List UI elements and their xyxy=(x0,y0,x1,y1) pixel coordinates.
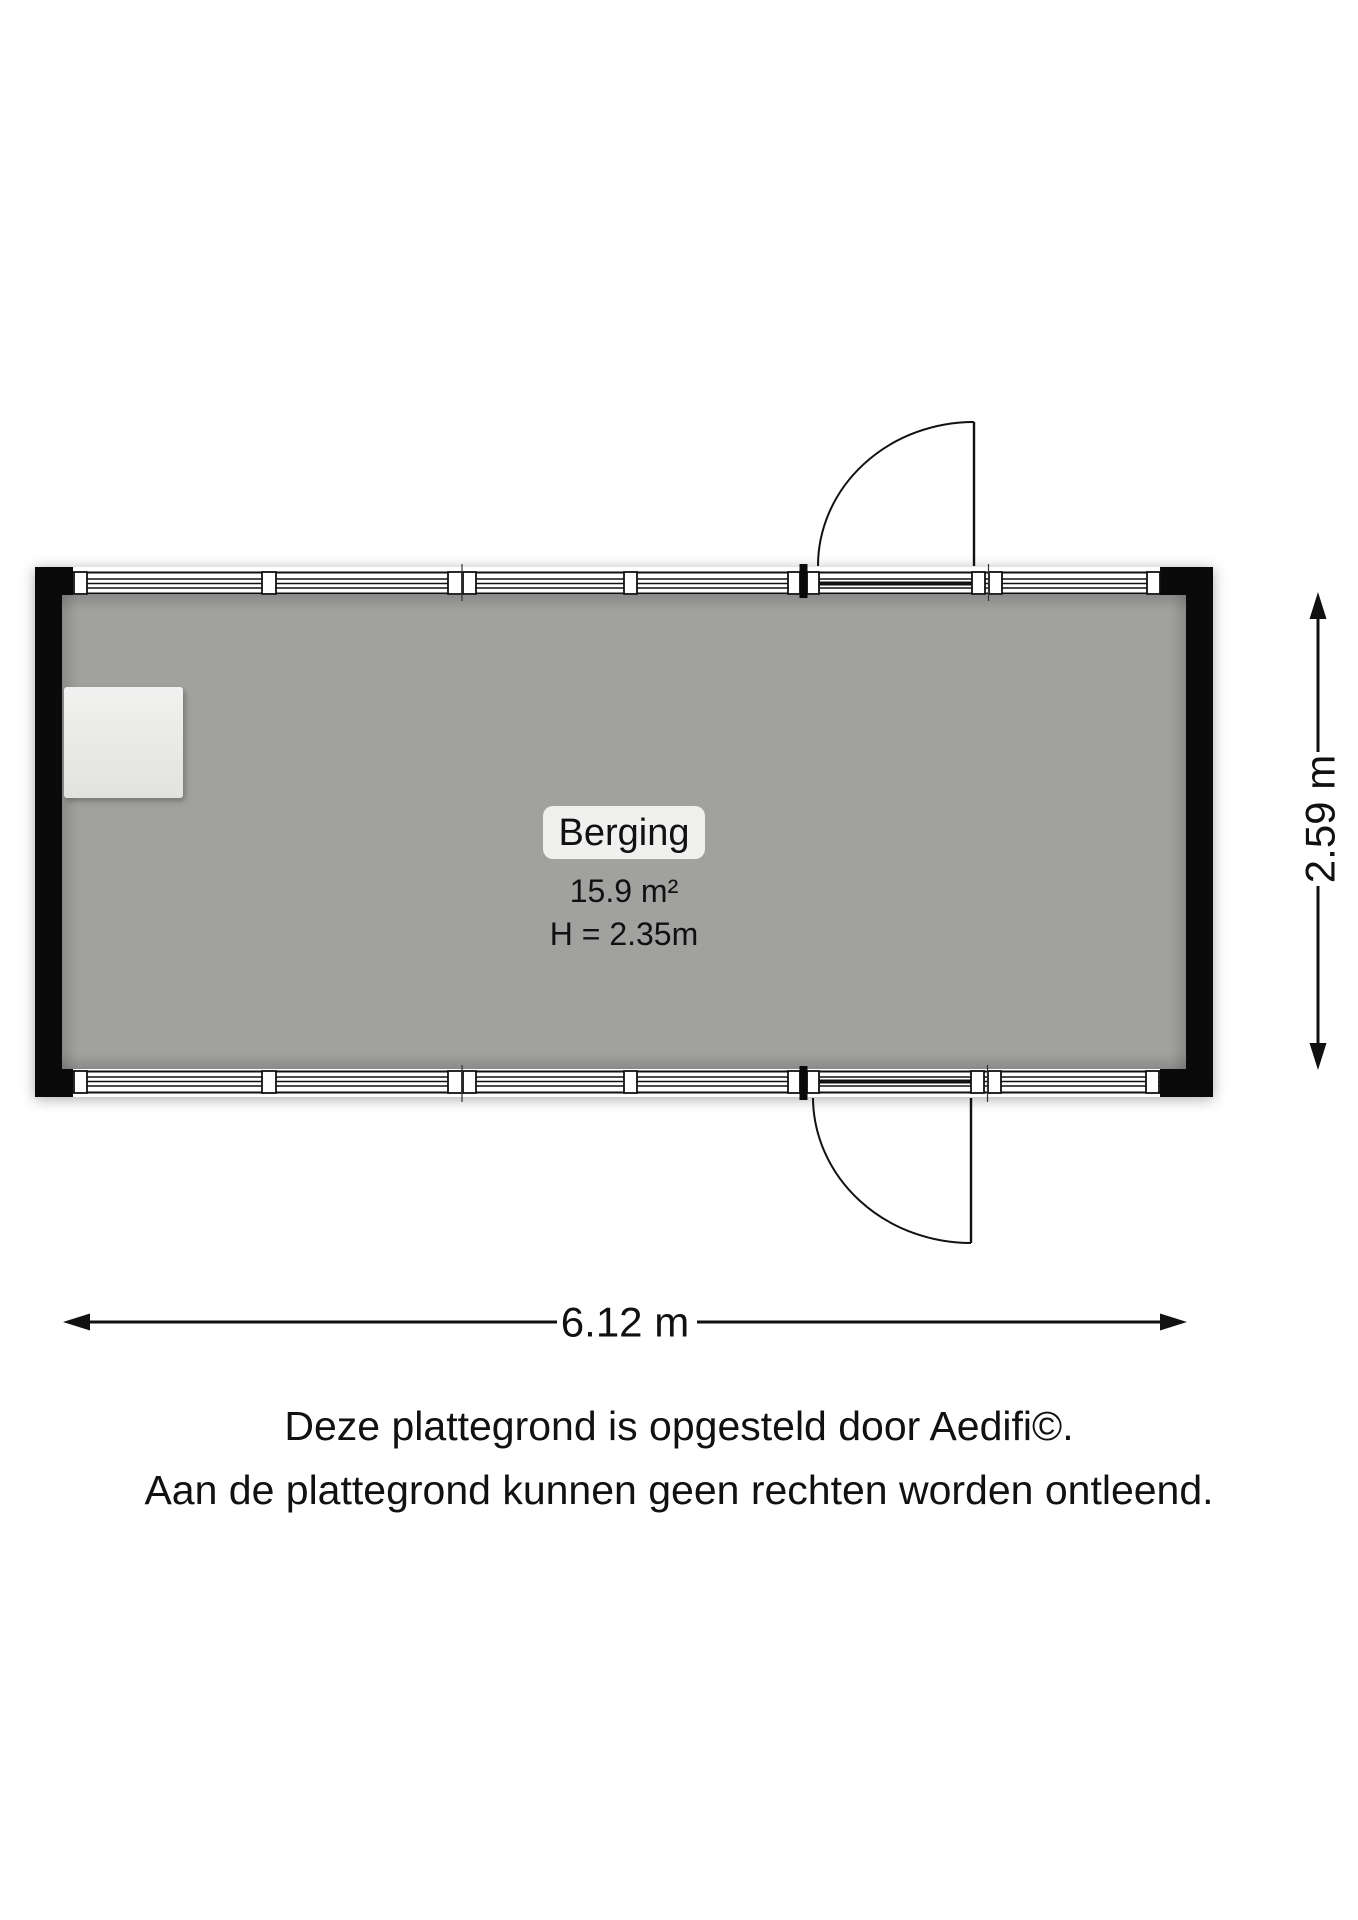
room-name: Berging xyxy=(559,812,690,854)
corner-bottom-right xyxy=(1160,1069,1213,1097)
fixture-block xyxy=(64,687,183,798)
corner-bottom-left xyxy=(35,1069,73,1097)
door-bottom xyxy=(813,1098,971,1243)
room-area: 15.9 m² xyxy=(570,873,679,909)
door-swing-arc-top xyxy=(818,422,974,566)
wall-left xyxy=(35,567,62,1097)
arrow-right-icon xyxy=(1160,1314,1187,1331)
door-top xyxy=(818,422,974,566)
corner-top-right xyxy=(1160,567,1213,595)
floor-plan-page: Berging 15.9 m² H = 2.35m 6.12 m 2.59 m … xyxy=(0,0,1358,1920)
footer-line-1: Deze plattegrond is opgesteld door Aedif… xyxy=(284,1403,1073,1449)
window-band-bottom xyxy=(73,1065,1160,1102)
corner-top-left xyxy=(35,567,73,595)
footer-line-2: Aan de plattegrond kunnen geen rechten w… xyxy=(144,1467,1213,1513)
room-ceiling-height: H = 2.35m xyxy=(550,916,699,952)
arrow-up-icon xyxy=(1310,592,1327,619)
dimension-width-label: 6.12 m xyxy=(561,1299,689,1346)
floor-plan-drawing: Berging 15.9 m² H = 2.35m 6.12 m 2.59 m … xyxy=(0,0,1358,1920)
door-post-bottom xyxy=(800,1066,808,1100)
wall-right xyxy=(1186,567,1213,1097)
dimension-height-label: 2.59 m xyxy=(1297,755,1344,883)
arrow-down-icon xyxy=(1310,1043,1327,1070)
door-swing-arc-bottom xyxy=(813,1098,971,1243)
door-post-top xyxy=(800,564,808,598)
arrow-left-icon xyxy=(63,1314,90,1331)
